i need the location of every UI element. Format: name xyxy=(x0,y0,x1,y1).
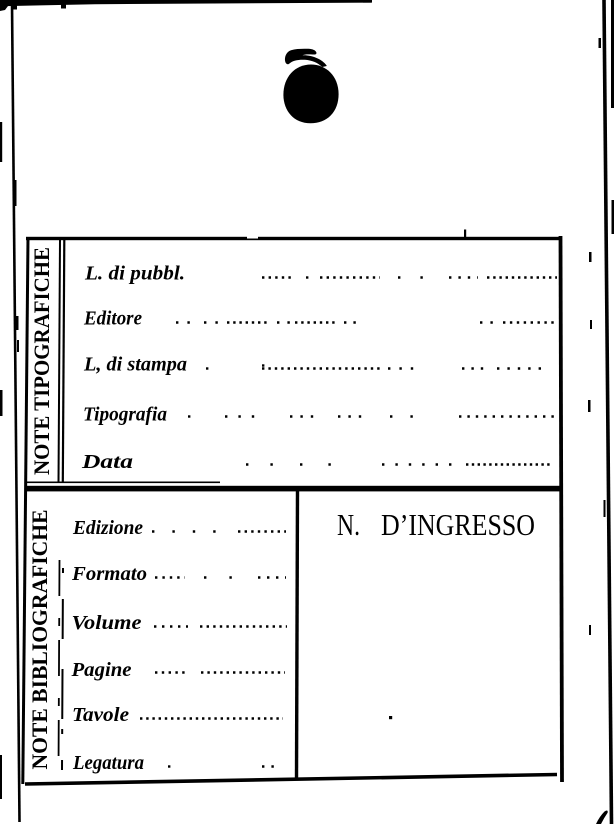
svg-text:Editore: Editore xyxy=(83,308,142,330)
svg-text:Volume: Volume xyxy=(72,612,142,634)
svg-text:Formato: Formato xyxy=(71,563,147,585)
svg-text:N.: N. xyxy=(337,507,360,542)
svg-text:Legatura: Legatura xyxy=(72,752,144,774)
svg-text:NOTE BIBLIOGRAFICHE: NOTE BIBLIOGRAFICHE xyxy=(27,510,52,770)
svg-text:L, di stampa: L, di stampa xyxy=(83,353,187,375)
svg-text:Tipografia: Tipografia xyxy=(83,404,167,426)
svg-text:NOTE TIPOGRAFICHE: NOTE TIPOGRAFICHE xyxy=(29,247,54,475)
svg-text:L. di pubbl.: L. di pubbl. xyxy=(84,263,185,285)
svg-text:Data: Data xyxy=(81,451,133,473)
svg-text:Tavole: Tavole xyxy=(72,704,129,726)
svg-text:D’INGRESSO: D’INGRESSO xyxy=(381,507,535,542)
svg-text:Pagine: Pagine xyxy=(70,659,131,681)
svg-text:Edizione: Edizione xyxy=(72,517,143,539)
